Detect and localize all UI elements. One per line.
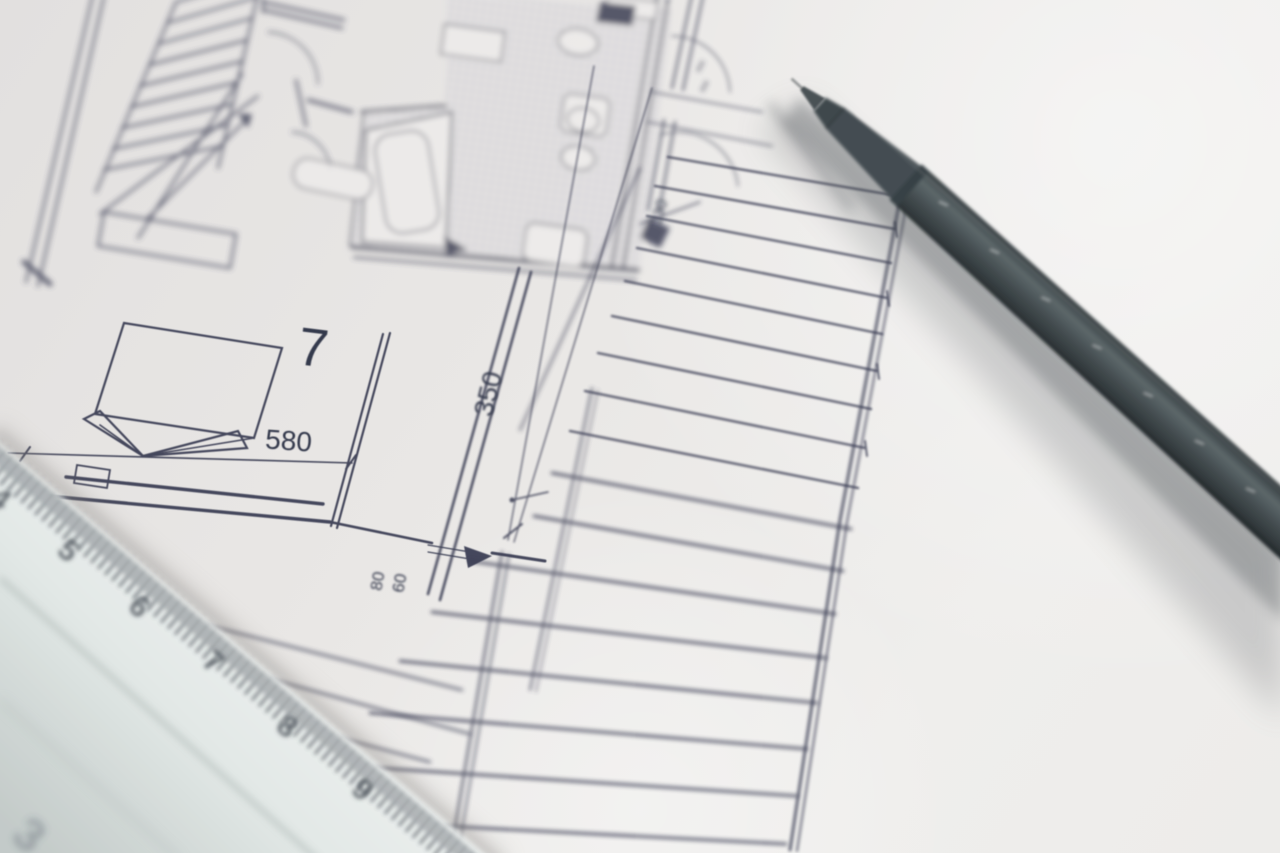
photo-architectural-plan: 7 580 350 80 60 130 [0, 0, 1280, 853]
photo-canvas: 7 580 350 80 60 130 [0, 0, 1280, 853]
vignette [0, 0, 1280, 853]
